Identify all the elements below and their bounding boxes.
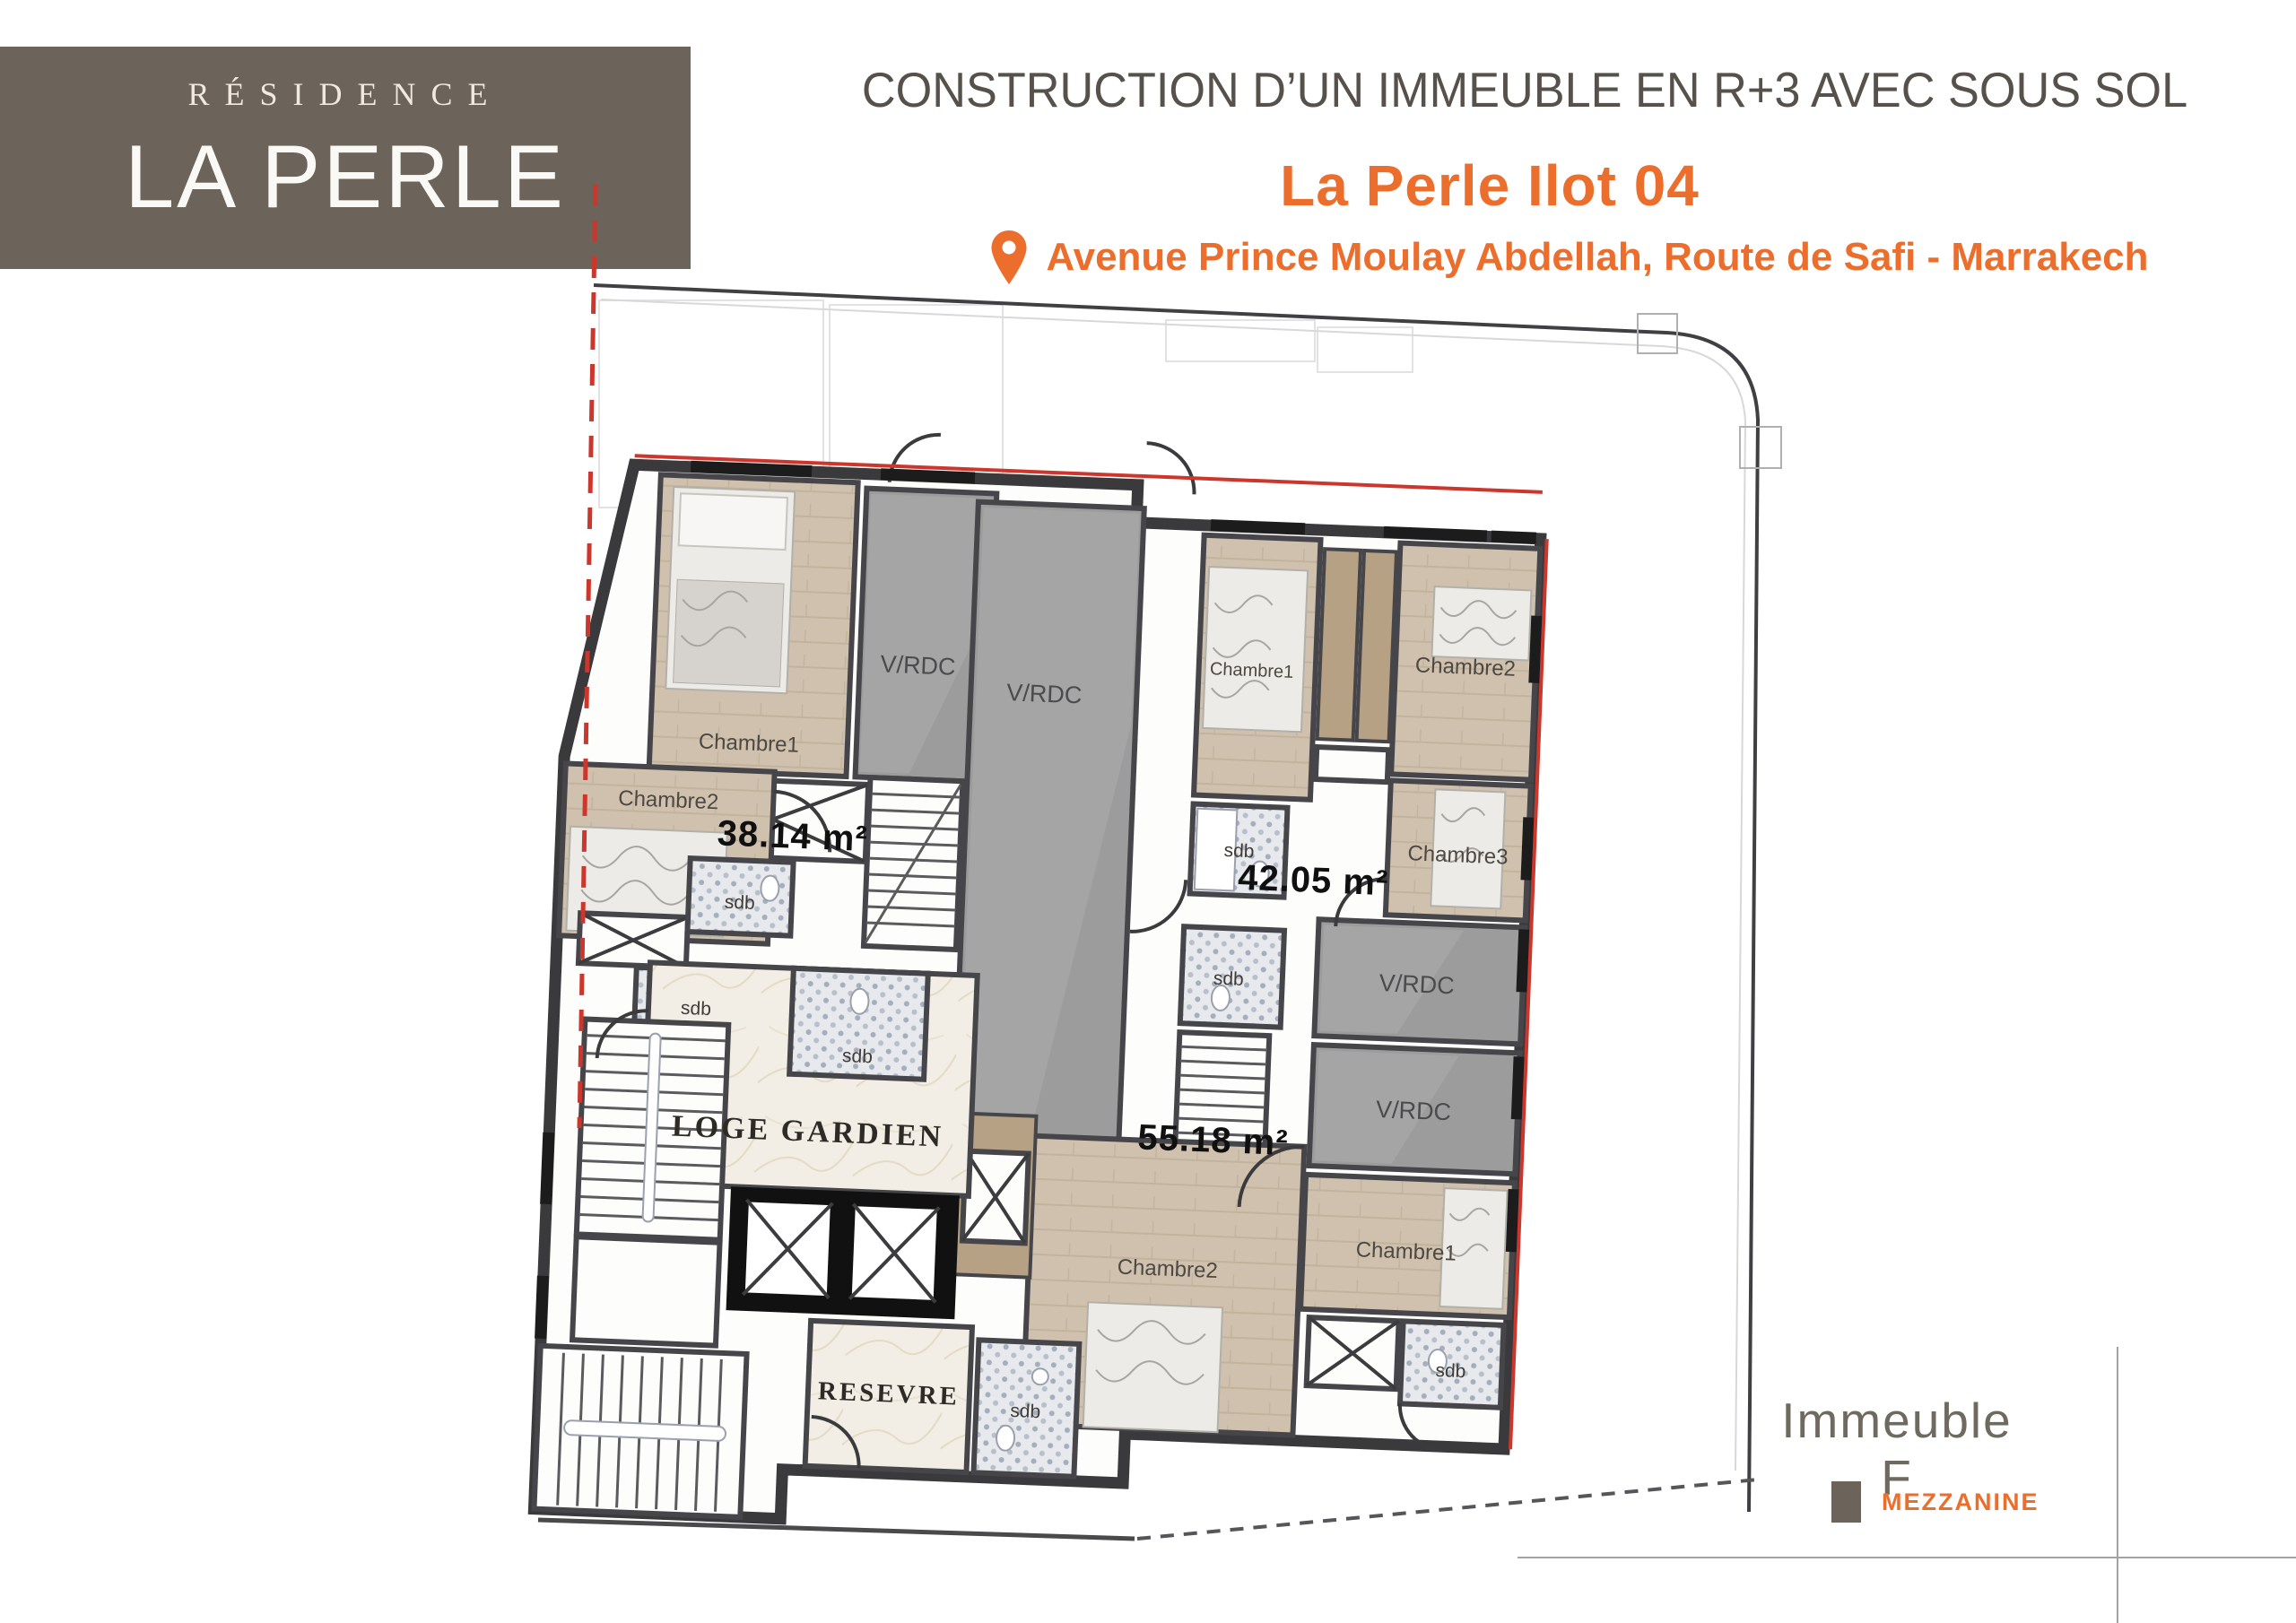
legend-mezzanine-swatch <box>1831 1481 1861 1523</box>
room-label: sdb <box>842 1046 874 1067</box>
room-label: sdb <box>681 998 712 1020</box>
room-label-reserve: RESEVRE <box>817 1376 960 1410</box>
room-label: V/RDC <box>880 650 956 680</box>
wardrobe <box>1357 551 1396 742</box>
room-label: sdb <box>1213 968 1244 990</box>
room-label: sdb <box>1435 1360 1466 1382</box>
room-label: Chambre3 <box>1407 841 1509 869</box>
bed <box>1083 1302 1222 1432</box>
site-bottom-dashed <box>1137 1480 1758 1539</box>
room-label: Chambre2 <box>1414 653 1516 681</box>
console <box>1316 747 1388 782</box>
floor-plan: Chambre1 V/RDC Chambre2 sdb sdb sdb 38.1… <box>0 0 2296 1623</box>
building-plan: Chambre1 V/RDC Chambre2 sdb sdb sdb 38.1… <box>527 420 1550 1548</box>
site-marker-square <box>1740 427 1781 468</box>
legend-mezzanine-label: MEZZANINE <box>1882 1488 2039 1516</box>
area-label-apt-right: 42.05 m² <box>1237 858 1389 904</box>
room-label: V/RDC <box>1375 1096 1451 1125</box>
room-label: sdb <box>1010 1401 1041 1422</box>
divider-horizontal <box>1518 1557 2296 1558</box>
room-label: Chambre1 <box>698 729 799 757</box>
room-label: Chambre1 <box>1355 1237 1457 1265</box>
bed <box>665 487 795 693</box>
area-label-apt-left: 38.14 m² <box>717 813 869 859</box>
room-label: Chambre2 <box>618 786 719 814</box>
staircase-annex <box>534 1346 746 1517</box>
room-label: Chambre1 <box>1210 659 1294 682</box>
divider-vertical <box>2117 1347 2118 1623</box>
room-label: V/RDC <box>1378 969 1455 999</box>
room-label: sdb <box>724 892 755 914</box>
bed <box>1431 586 1531 660</box>
hall <box>572 1237 719 1345</box>
room-label: V/RDC <box>1006 679 1083 708</box>
site-bottom-line <box>538 1520 1135 1539</box>
room-label: Chambre2 <box>1117 1255 1218 1283</box>
wardrobe <box>1318 549 1361 740</box>
bed <box>1203 567 1308 732</box>
staircase <box>864 777 962 950</box>
elevators <box>726 1186 960 1319</box>
area-label-apt-bottom: 55.18 m² <box>1137 1117 1290 1163</box>
core-vrdc-central <box>951 502 1144 1199</box>
